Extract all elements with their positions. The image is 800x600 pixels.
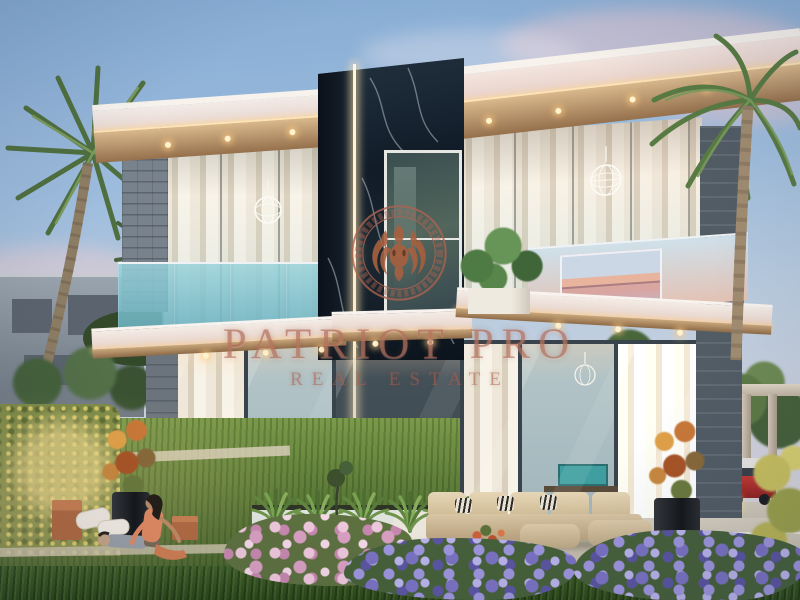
lion-head <box>372 225 425 282</box>
watermark-lion-logo <box>349 203 449 303</box>
watermark-brand-name: PATRIOT PRO <box>0 320 800 369</box>
watermark-brand-tagline: REAL ESTATE <box>0 369 800 391</box>
villa-rendering-photo: e0a <box>0 0 800 600</box>
